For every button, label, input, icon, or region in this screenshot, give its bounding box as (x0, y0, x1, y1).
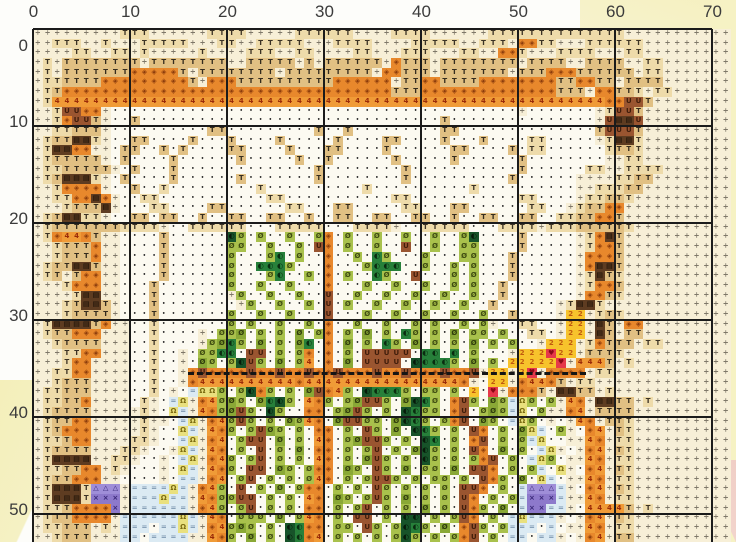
stitch-cell: • (140, 455, 150, 465)
stitch-cell: • (382, 165, 392, 175)
stitch-cell: • (362, 465, 372, 475)
stitch-cell: ◈ (508, 77, 518, 87)
stitch-cell: • (178, 262, 188, 272)
stitch-cell: T (52, 252, 62, 262)
stitch-cell: ÷ (556, 329, 566, 339)
stitch-cell: U (324, 291, 334, 301)
stitch-cell: ÷ (101, 145, 111, 155)
stitch-cell: ◈ (304, 349, 314, 359)
stitch-cell: Ø (333, 513, 343, 523)
stitch-cell: ÷ (634, 291, 644, 301)
stitch-cell: ▤ (605, 262, 615, 272)
stitch-cell: Ø (421, 252, 431, 262)
stitch-cell: • (479, 291, 489, 301)
stitch-cell: T (140, 194, 150, 204)
stitch-cell: • (527, 271, 537, 281)
stitch-cell: ◈ (81, 358, 91, 368)
stitch-cell: T (527, 203, 537, 213)
stitch-cell: T (353, 58, 363, 68)
stitch-cell: Ω (178, 397, 188, 407)
stitch-cell: ◈ (91, 252, 101, 262)
stitch-cell: ÷ (246, 39, 256, 49)
stitch-cell: Ø (401, 504, 411, 514)
stitch-cell: U (459, 494, 469, 504)
stitch-cell: • (178, 320, 188, 330)
stitch-cell: ÷ (721, 155, 731, 165)
stitch-cell: T (614, 513, 624, 523)
stitch-cell: ◈ (324, 349, 334, 359)
stitch-cell: • (430, 504, 440, 514)
stitch-cell: • (198, 232, 208, 242)
stitch-cell: 2 (527, 358, 537, 368)
stitch-cell: T (653, 77, 663, 87)
stitch-cell: • (517, 174, 527, 184)
stitch-cell: Ø (362, 455, 372, 465)
stitch-cell: ◈ (333, 87, 343, 97)
stitch-cell: Ø (450, 426, 460, 436)
stitch-cell: Ø (227, 358, 237, 368)
stitch-cell: ▤ (91, 300, 101, 310)
stitch-cell: ÷ (101, 378, 111, 388)
stitch-cell: • (411, 194, 421, 204)
stitch-cell: • (295, 165, 305, 175)
stitch-cell: • (343, 291, 353, 301)
stitch-cell: • (421, 533, 431, 542)
stitch-cell: ◈ (614, 203, 624, 213)
stitch-cell: = (169, 397, 179, 407)
stitch-cell: • (566, 194, 576, 204)
stitch-cell: ÷ (653, 484, 663, 494)
stitch-cell: Ø (295, 426, 305, 436)
stitch-cell: U (343, 417, 353, 427)
stitch-cell: ÷ (682, 155, 692, 165)
stitch-cell: ◈ (585, 426, 595, 436)
stitch-cell: • (236, 455, 246, 465)
stitch-cell: ÷ (546, 407, 556, 417)
stitch-cell: ÷ (663, 533, 673, 542)
stitch-cell: ÷ (614, 300, 624, 310)
stitch-cell: T (81, 223, 91, 233)
stitch-cell: • (333, 446, 343, 456)
stitch-cell: = (527, 436, 537, 446)
stitch-cell: 2 (566, 310, 576, 320)
stitch-cell: • (111, 174, 121, 184)
stitch-cell: ÷ (721, 387, 731, 397)
stitch-cell: ÷ (721, 174, 731, 184)
stitch-cell: Ø (285, 397, 295, 407)
stitch-cell: T (304, 223, 314, 233)
stitch-cell: Ø (488, 533, 498, 542)
stitch-cell: T (81, 213, 91, 223)
stitch-cell: T (614, 58, 624, 68)
stitch-cell: ◈ (527, 387, 537, 397)
stitch-cell: ÷ (304, 39, 314, 49)
stitch-cell: ÷ (149, 48, 159, 58)
stitch-cell: ÷ (91, 436, 101, 446)
stitch-cell: T (169, 39, 179, 49)
stitch-cell: T (324, 58, 334, 68)
stitch-cell: • (333, 194, 343, 204)
stitch-cell: ◈ (566, 407, 576, 417)
stitch-cell: • (585, 116, 595, 126)
stitch-cell: ◈ (324, 455, 334, 465)
stitch-cell: U (372, 397, 382, 407)
stitch-cell: T (91, 174, 101, 184)
stitch-cell: T (207, 223, 217, 233)
stitch-cell: • (169, 436, 179, 446)
stitch-cell: T (508, 58, 518, 68)
stitch-cell: T (498, 223, 508, 233)
stitch-cell: ÷ (701, 39, 711, 49)
stitch-cell: ◈ (140, 68, 150, 78)
stitch-cell: ÷ (285, 48, 295, 58)
stitch-cell: T (81, 523, 91, 533)
stitch-cell: T (508, 29, 518, 39)
stitch-cell: T (362, 39, 372, 49)
stitch-cell: 4 (266, 378, 276, 388)
stitch-cell: • (537, 320, 547, 330)
stitch-cell: ÷ (663, 504, 673, 514)
stitch-cell: ÷ (43, 116, 53, 126)
stitch-cell: ÷ (721, 39, 731, 49)
stitch-cell: • (266, 484, 276, 494)
stitch-cell: • (159, 136, 169, 146)
stitch-cell: ÷ (711, 368, 721, 378)
stitch-cell: • (450, 165, 460, 175)
stitch-cell: Ø (207, 339, 217, 349)
stitch-cell: T (653, 68, 663, 78)
stitch-cell: Ø (421, 310, 431, 320)
stitch-cell: • (576, 484, 586, 494)
stitch-cell: T (546, 58, 556, 68)
stitch-cell: ◈ (256, 87, 266, 97)
stitch-cell: • (440, 232, 450, 242)
stitch-cell: • (421, 145, 431, 155)
stitch-cell: ÷ (653, 504, 663, 514)
stitch-cell: • (411, 262, 421, 272)
stitch-cell: T (72, 349, 82, 359)
stitch-cell: T (91, 77, 101, 87)
stitch-cell: T (62, 446, 72, 456)
stitch-cell: • (498, 174, 508, 184)
stitch-cell: Ø (488, 358, 498, 368)
stitch-cell: ÷ (33, 504, 43, 514)
stitch-cell: • (120, 310, 130, 320)
stitch-cell: ÷ (324, 48, 334, 58)
stitch-cell: • (275, 310, 285, 320)
stitch-cell: T (207, 126, 217, 136)
stitch-cell: T (595, 126, 605, 136)
stitch-cell: • (266, 513, 276, 523)
stitch-cell: ÷ (33, 194, 43, 204)
stitch-cell: T (62, 504, 72, 514)
stitch-cell: T (605, 29, 615, 39)
stitch-cell: • (440, 300, 450, 310)
stitch-cell: • (498, 465, 508, 475)
stitch-cell: • (459, 116, 469, 126)
stitch-cell: Ø (275, 436, 285, 446)
stitch-cell: ◈ (527, 77, 537, 87)
stitch-cell: ÷ (711, 87, 721, 97)
stitch-cell: Ø (430, 513, 440, 523)
stitch-cell: ◈ (236, 87, 246, 97)
stitch-cell: • (178, 174, 188, 184)
stitch-cell: • (304, 155, 314, 165)
stitch-cell: • (546, 262, 556, 272)
stitch-cell: ÷ (246, 29, 256, 39)
stitch-cell: • (517, 126, 527, 136)
stitch-cell: • (440, 155, 450, 165)
stitch-cell: Ø (508, 339, 518, 349)
stitch-cell: ÷ (624, 387, 634, 397)
stitch-cell: Ω (198, 387, 208, 397)
stitch-cell: = (508, 533, 518, 542)
stitch-cell: T (605, 39, 615, 49)
stitch-cell: ▤ (81, 455, 91, 465)
stitch-cell: • (159, 107, 169, 117)
stitch-cell: ÷ (81, 39, 91, 49)
stitch-cell: Ø (479, 407, 489, 417)
stitch-cell: • (488, 126, 498, 136)
stitch-cell: ◈ (391, 58, 401, 68)
stitch-cell: T (130, 165, 140, 175)
stitch-cell: T (614, 523, 624, 533)
stitch-cell: • (585, 145, 595, 155)
stitch-cell: ◈ (275, 87, 285, 97)
stitch-cell: ÷ (120, 436, 130, 446)
stitch-cell: • (343, 174, 353, 184)
stitch-cell: 4 (488, 97, 498, 107)
stitch-cell: • (556, 232, 566, 242)
stitch-cell: • (527, 291, 537, 301)
stitch-cell: Ø (469, 329, 479, 339)
stitch-cell: Ø (343, 455, 353, 465)
stitch-cell: • (353, 213, 363, 223)
stitch-cell: ÷ (663, 242, 673, 252)
stitch-cell: • (314, 339, 324, 349)
stitch-cell: ÷ (382, 39, 392, 49)
stitch-cell: ◈ (314, 397, 324, 407)
stitch-cell: ÷ (33, 484, 43, 494)
stitch-cell: ◈ (469, 504, 479, 514)
stitch-cell: = (188, 465, 198, 475)
stitch-cell: • (353, 523, 363, 533)
stitch-cell: ÷ (605, 174, 615, 184)
stitch-cell: • (178, 165, 188, 175)
stitch-cell: Ø (285, 417, 295, 427)
stitch-cell: ÷ (52, 281, 62, 291)
stitch-cell: • (188, 281, 198, 291)
stitch-cell: T (246, 48, 256, 58)
stitch-cell: T (43, 145, 53, 155)
stitch-cell: ÷ (711, 417, 721, 427)
stitch-cell: U (372, 349, 382, 359)
stitch-cell: T (605, 58, 615, 68)
stitch-cell: T (576, 29, 586, 39)
stitch-cell: ÷ (576, 58, 586, 68)
stitch-cell: T (217, 58, 227, 68)
stitch-cell: T (295, 223, 305, 233)
stitch-cell: Ω (546, 446, 556, 456)
stitch-cell: • (421, 320, 431, 330)
stitch-cell: • (498, 358, 508, 368)
stitch-cell: ÷ (682, 213, 692, 223)
stitch-cell: Ø (333, 494, 343, 504)
stitch-cell: T (576, 87, 586, 97)
stitch-cell: • (111, 126, 121, 136)
stitch-cell: • (362, 194, 372, 204)
stitch-cell: • (479, 194, 489, 204)
stitch-cell: • (275, 126, 285, 136)
stitch-cell: Ø (246, 417, 256, 427)
stitch-cell: ÷ (692, 107, 702, 117)
stitch-cell: • (401, 310, 411, 320)
stitch-cell: • (217, 320, 227, 330)
stitch-cell: Ø (469, 455, 479, 465)
stitch-cell: ÷ (711, 281, 721, 291)
stitch-cell: ▤ (72, 320, 82, 330)
stitch-cell: 4 (314, 436, 324, 446)
stitch-cell: T (140, 213, 150, 223)
stitch-cell: T (159, 242, 169, 252)
stitch-cell: • (333, 455, 343, 465)
stitch-cell: ÷ (120, 465, 130, 475)
stitch-cell: T (605, 136, 615, 146)
stitch-cell: • (576, 465, 586, 475)
stitch-cell: • (285, 194, 295, 204)
stitch-cell: ◈ (256, 368, 266, 378)
stitch-cell: • (517, 310, 527, 320)
stitch-cell: ÷ (643, 184, 653, 194)
stitch-cell: ◈ (207, 417, 217, 427)
stitch-cell: • (382, 523, 392, 533)
stitch-cell: × (111, 504, 121, 514)
stitch-cell: T (556, 378, 566, 388)
stitch-cell: ÷ (672, 223, 682, 233)
stitch-cell: T (198, 68, 208, 78)
stitch-cell: • (343, 484, 353, 494)
stitch-cell: 4 (411, 97, 421, 107)
stitch-cell: T (101, 165, 111, 175)
stitch-cell: Ø (401, 465, 411, 475)
stitch-cell: • (440, 320, 450, 330)
stitch-cell: Ø (266, 533, 276, 542)
stitch-cell: • (498, 213, 508, 223)
stitch-cell: • (527, 281, 537, 291)
stitch-cell: 4 (382, 378, 392, 388)
stitch-cell: • (566, 281, 576, 291)
stitch-cell: ◈ (576, 397, 586, 407)
stitch-cell: ÷ (236, 300, 246, 310)
stitch-cell: • (159, 387, 169, 397)
stitch-cell: • (362, 291, 372, 301)
stitch-cell: • (178, 281, 188, 291)
stitch-cell: • (488, 184, 498, 194)
stitch-cell: T (159, 252, 169, 262)
stitch-cell: Ø (411, 533, 421, 542)
stitch-cell: T (421, 223, 431, 233)
stitch-cell: T (217, 223, 227, 233)
stitch-cell: • (236, 310, 246, 320)
stitch-cell: • (459, 387, 469, 397)
scanned-cross-stitch-pattern-page: { "pattern": { "kind": "cross-stitch col… (0, 0, 736, 542)
stitch-cell: U (440, 368, 450, 378)
stitch-cell: ÷ (517, 107, 527, 117)
stitch-cell: • (324, 484, 334, 494)
stitch-cell: • (227, 300, 237, 310)
stitch-cell: • (149, 455, 159, 465)
stitch-cell: T (585, 68, 595, 78)
stitch-cell: 4 (362, 378, 372, 388)
stitch-cell: • (479, 107, 489, 117)
stitch-cell: • (178, 387, 188, 397)
stitch-cell: T (440, 39, 450, 49)
stitch-cell: ÷ (130, 48, 140, 58)
stitch-cell: • (391, 145, 401, 155)
stitch-cell: T (81, 48, 91, 58)
stitch-cell: ÷ (33, 455, 43, 465)
stitch-cell: T (81, 446, 91, 456)
stitch-cell: ÷ (643, 136, 653, 146)
stitch-cell: T (595, 300, 605, 310)
stitch-cell: ÷ (634, 455, 644, 465)
stitch-cell: • (246, 174, 256, 184)
stitch-cell: ÷ (711, 174, 721, 184)
stitch-cell: ÷ (614, 48, 624, 58)
stitch-cell: • (488, 194, 498, 204)
stitch-cell: • (527, 300, 537, 310)
stitch-cell: • (488, 203, 498, 213)
stitch-cell: • (236, 107, 246, 117)
stitch-cell: • (140, 242, 150, 252)
stitch-cell: T (605, 68, 615, 78)
stitch-cell: • (566, 184, 576, 194)
stitch-cell: • (382, 107, 392, 117)
stitch-cell: ÷ (624, 58, 634, 68)
stitch-cell: • (479, 358, 489, 368)
stitch-cell: Ω (178, 465, 188, 475)
stitch-cell: ÷ (469, 29, 479, 39)
stitch-cell: ÷ (634, 475, 644, 485)
stitch-cell: ÷ (33, 368, 43, 378)
stitch-cell: T (295, 29, 305, 39)
stitch-cell: • (236, 262, 246, 272)
stitch-cell: ◈ (430, 368, 440, 378)
stitch-cell: ◈ (62, 426, 72, 436)
stitch-cell: T (605, 387, 615, 397)
stitch-cell: • (498, 232, 508, 242)
stitch-cell: • (382, 426, 392, 436)
stitch-cell: • (246, 184, 256, 194)
stitch-cell: T (81, 484, 91, 494)
stitch-cell: Ø (362, 417, 372, 427)
stitch-cell: ÷ (149, 426, 159, 436)
stitch-cell: T (479, 213, 489, 223)
stitch-cell: • (295, 213, 305, 223)
stitch-cell: Ø (285, 262, 295, 272)
stitch-cell: • (372, 504, 382, 514)
stitch-cell: • (546, 116, 556, 126)
stitch-cell: ÷ (711, 126, 721, 136)
stitch-cell: = (517, 533, 527, 542)
stitch-cell: ◈ (459, 533, 469, 542)
stitch-cell: 4 (585, 494, 595, 504)
stitch-cell: • (198, 116, 208, 126)
stitch-cell: ÷ (663, 436, 673, 446)
stitch-cell: • (169, 368, 179, 378)
stitch-cell: ÷ (333, 48, 343, 58)
stitch-cell: ÷ (576, 339, 586, 349)
